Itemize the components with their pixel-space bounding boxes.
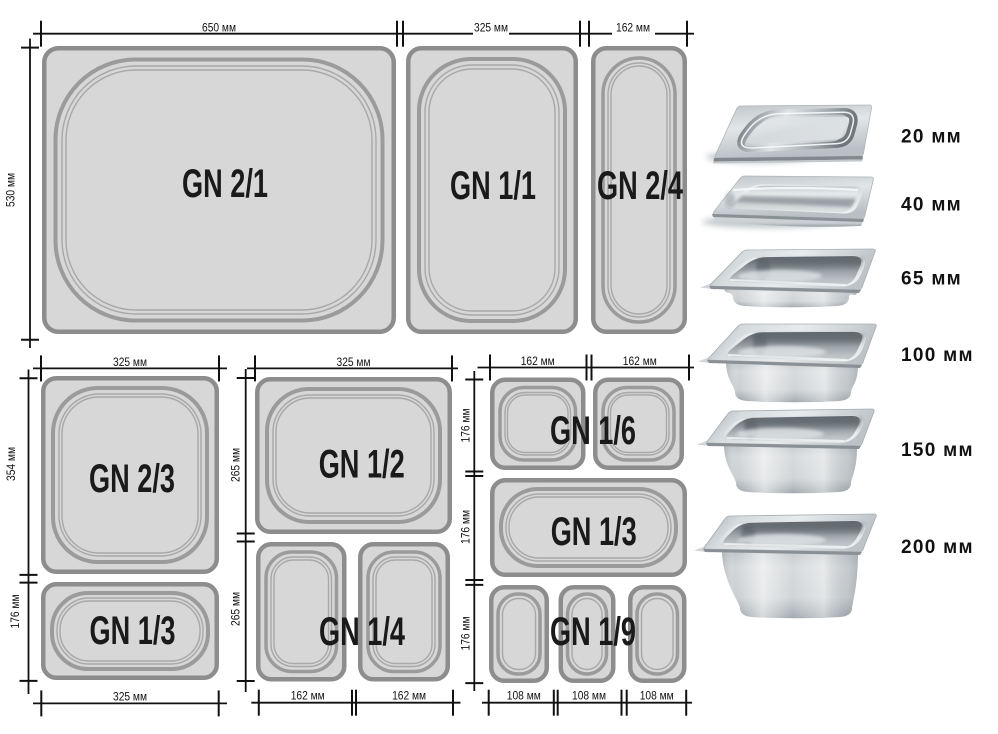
svg-text:162 мм: 162 мм bbox=[392, 691, 426, 703]
svg-text:176 мм: 176 мм bbox=[461, 408, 473, 442]
svg-text:GN 1/6: GN 1/6 bbox=[550, 409, 636, 453]
svg-text:325 мм: 325 мм bbox=[113, 357, 147, 369]
svg-text:GN 1/3: GN 1/3 bbox=[90, 609, 176, 653]
svg-text:GN 2/4: GN 2/4 bbox=[597, 164, 684, 208]
svg-text:325 мм: 325 мм bbox=[113, 692, 147, 704]
svg-text:GN 1/9: GN 1/9 bbox=[550, 610, 636, 654]
svg-text:354 мм: 354 мм bbox=[6, 447, 18, 481]
svg-text:265 мм: 265 мм bbox=[231, 592, 243, 626]
svg-text:GN 1/1: GN 1/1 bbox=[450, 164, 536, 208]
svg-text:GN 1/3: GN 1/3 bbox=[551, 510, 637, 554]
svg-text:176 мм: 176 мм bbox=[461, 510, 473, 544]
svg-text:200 мм: 200 мм bbox=[901, 537, 974, 558]
svg-text:108 мм: 108 мм bbox=[507, 691, 541, 703]
svg-text:325 мм: 325 мм bbox=[474, 23, 508, 35]
svg-text:162 мм: 162 мм bbox=[623, 356, 657, 368]
svg-text:GN 2/3: GN 2/3 bbox=[89, 457, 175, 501]
svg-text:176 мм: 176 мм bbox=[10, 594, 22, 628]
svg-text:GN 1/2: GN 1/2 bbox=[319, 443, 405, 487]
svg-text:100 мм: 100 мм bbox=[901, 345, 974, 366]
svg-text:176 мм: 176 мм bbox=[461, 616, 473, 650]
svg-text:162 мм: 162 мм bbox=[291, 691, 325, 703]
svg-text:325 мм: 325 мм bbox=[337, 357, 371, 369]
svg-text:40 мм: 40 мм bbox=[901, 195, 962, 216]
svg-text:265 мм: 265 мм bbox=[231, 448, 243, 482]
svg-text:530 мм: 530 мм bbox=[6, 173, 18, 207]
svg-text:65 мм: 65 мм bbox=[901, 269, 962, 290]
svg-text:650 мм: 650 мм bbox=[202, 23, 236, 35]
svg-text:20 мм: 20 мм bbox=[901, 127, 962, 148]
svg-text:162 мм: 162 мм bbox=[521, 356, 555, 368]
svg-text:GN 2/1: GN 2/1 bbox=[182, 162, 268, 206]
svg-text:162 мм: 162 мм bbox=[616, 23, 650, 35]
svg-text:GN 1/4: GN 1/4 bbox=[319, 610, 406, 654]
svg-text:150 мм: 150 мм bbox=[901, 440, 974, 461]
svg-text:108 мм: 108 мм bbox=[572, 691, 606, 703]
svg-text:108 мм: 108 мм bbox=[640, 691, 674, 703]
